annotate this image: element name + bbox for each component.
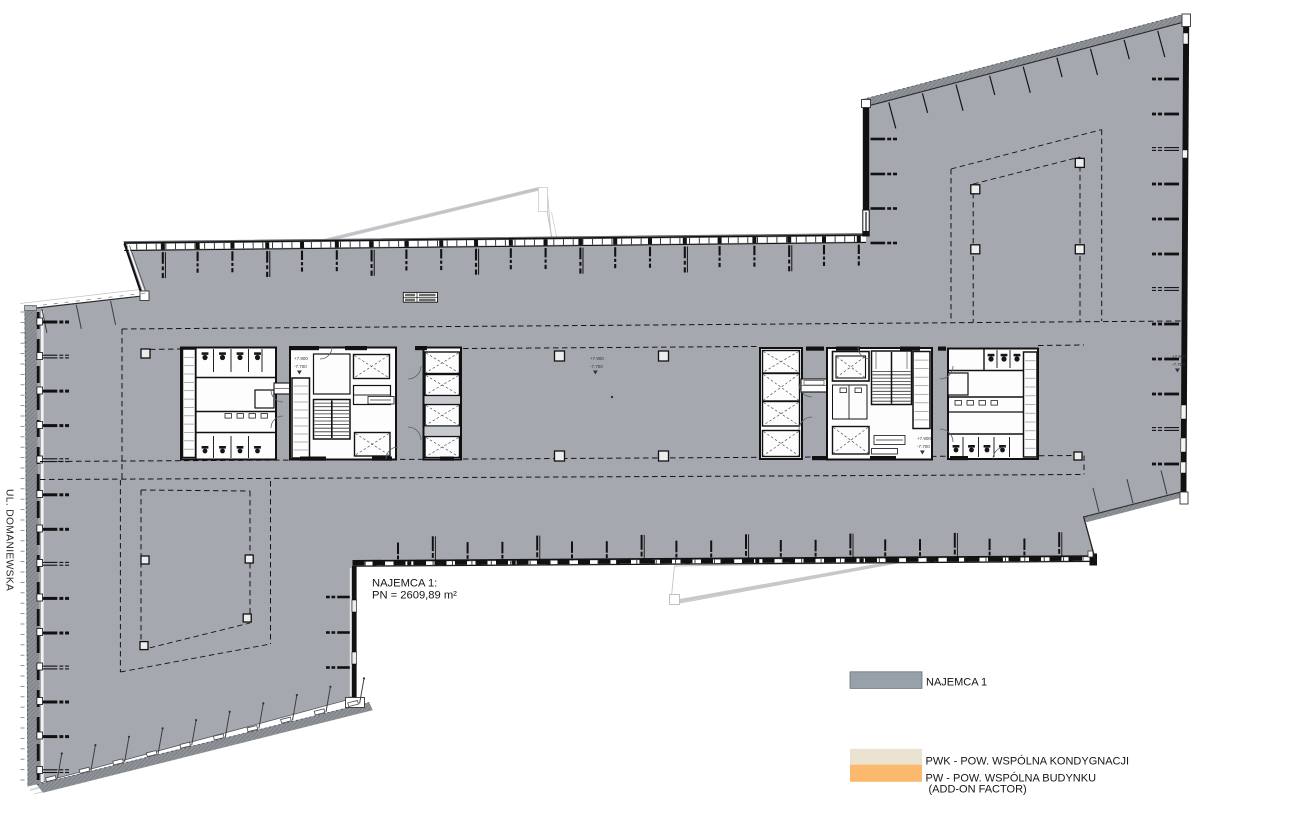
svg-text:(ADD-ON FACTOR): (ADD-ON FACTOR) xyxy=(929,784,1027,796)
svg-text:PWK - POW. WSPÓLNA KONDYGNACJI: PWK - POW. WSPÓLNA KONDYGNACJI xyxy=(926,755,1130,768)
svg-text:+7.900: +7.900 xyxy=(917,436,931,441)
svg-text:-7.700: -7.700 xyxy=(1172,362,1185,367)
svg-text:+7.900: +7.900 xyxy=(294,356,308,361)
svg-text:+7.900: +7.900 xyxy=(590,356,604,361)
svg-text:UL. DOMANIEWSKA: UL. DOMANIEWSKA xyxy=(4,489,15,591)
svg-text:PN = 2609,89 m²: PN = 2609,89 m² xyxy=(372,590,457,602)
svg-text:NAJEMCA 1: NAJEMCA 1 xyxy=(926,677,987,689)
svg-text:NAJEMCA 1:: NAJEMCA 1: xyxy=(372,578,437,590)
svg-text:+7.900: +7.900 xyxy=(1172,354,1186,359)
svg-text:-7.700: -7.700 xyxy=(294,364,307,369)
svg-text:-7.700: -7.700 xyxy=(590,364,603,369)
svg-text:-7.700: -7.700 xyxy=(917,444,930,449)
